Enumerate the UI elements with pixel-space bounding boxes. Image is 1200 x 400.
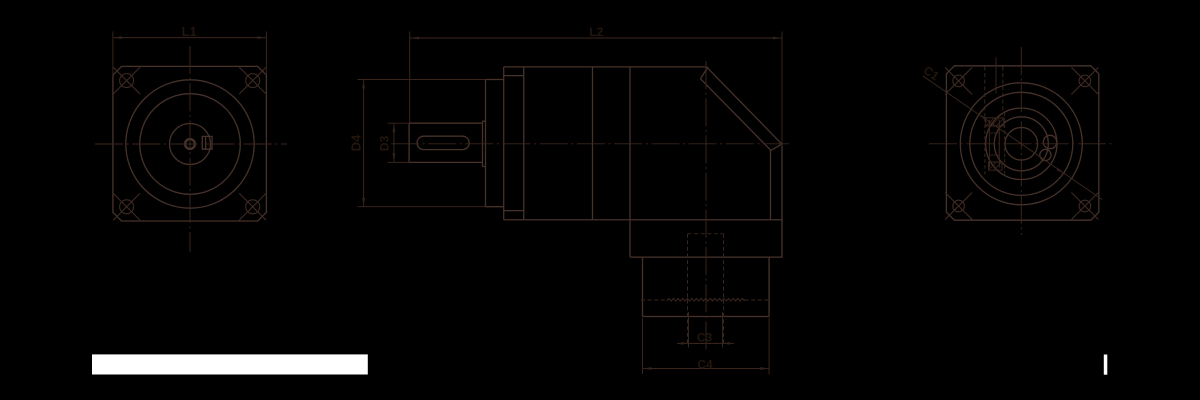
svg-text:C3: C3 xyxy=(697,330,713,344)
svg-text:L1: L1 xyxy=(182,24,197,39)
svg-text:D3: D3 xyxy=(378,135,392,151)
svg-text:D4: D4 xyxy=(349,134,364,151)
svg-text:L2: L2 xyxy=(589,25,603,39)
svg-text:C4: C4 xyxy=(697,358,713,372)
